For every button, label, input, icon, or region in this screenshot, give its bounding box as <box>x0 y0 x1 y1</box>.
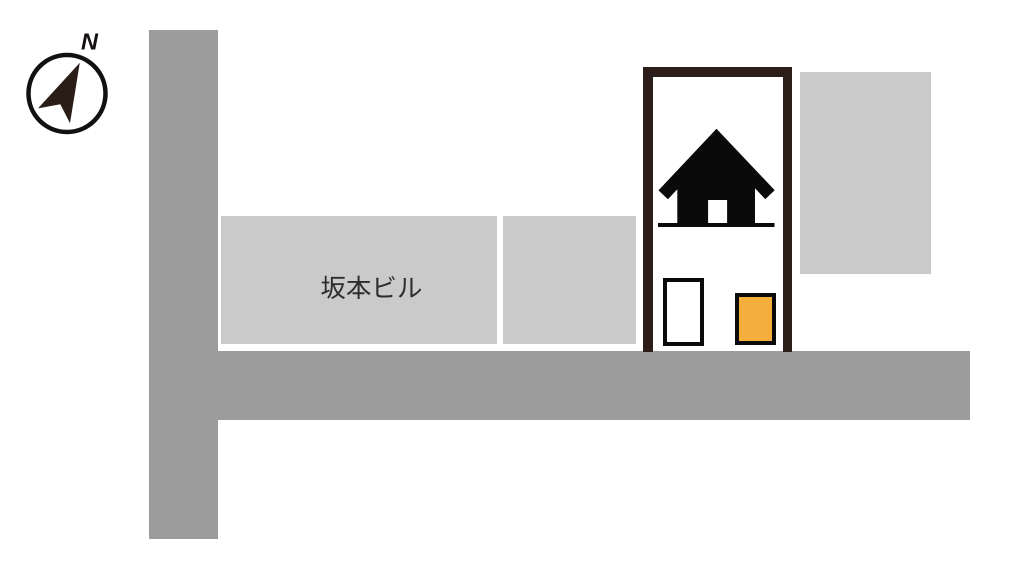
svg-text:N: N <box>81 29 99 55</box>
